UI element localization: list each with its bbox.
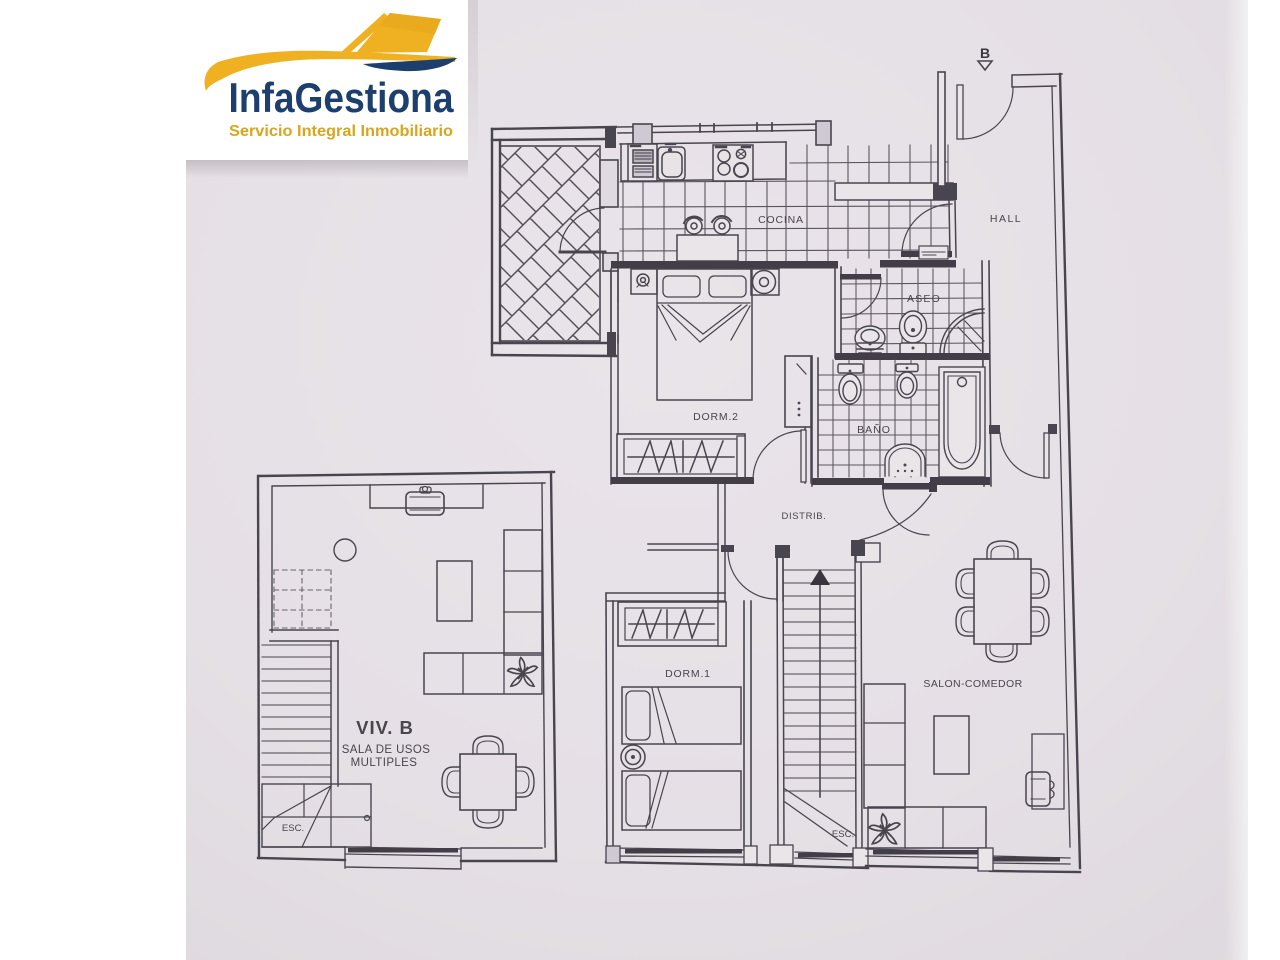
svg-text:DORM.2: DORM.2 [693,411,739,423]
svg-text:SALON-COMEDOR: SALON-COMEDOR [923,678,1022,690]
svg-text:ESC.: ESC. [282,823,304,834]
svg-text:ESC.: ESC. [832,829,854,840]
svg-text:DISTRIB.: DISTRIB. [782,511,827,522]
svg-text:VIV. B: VIV. B [356,717,414,738]
svg-text:B: B [980,45,990,61]
svg-text:BAÑO: BAÑO [857,423,891,436]
svg-text:InfaGestiona: InfaGestiona [229,74,455,121]
svg-text:MULTIPLES: MULTIPLES [351,757,418,769]
svg-text:HALL: HALL [990,213,1022,225]
svg-text:DORM.1: DORM.1 [665,668,711,680]
svg-text:SALA DE USOS: SALA DE USOS [342,744,431,756]
svg-text:Servicio Integral Inmobiliario: Servicio Integral Inmobiliario [229,123,453,140]
svg-text:COCINA: COCINA [758,214,804,226]
svg-text:ASEO: ASEO [907,293,941,305]
